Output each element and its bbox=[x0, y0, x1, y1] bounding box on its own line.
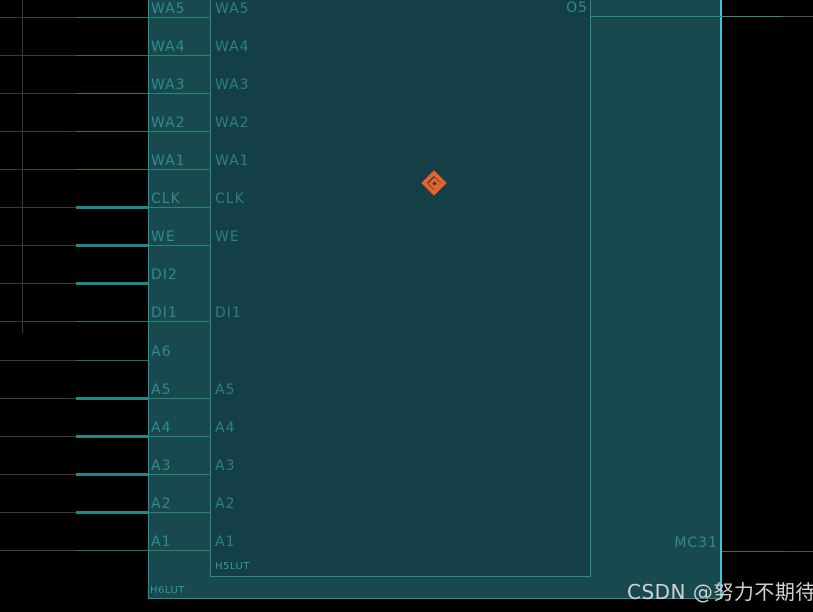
net-a3[interactable] bbox=[76, 473, 148, 476]
offpage-net[interactable] bbox=[0, 245, 76, 246]
internal-net-wa1[interactable] bbox=[148, 169, 211, 170]
net-wa1[interactable] bbox=[76, 169, 148, 170]
offpage-net[interactable] bbox=[0, 93, 76, 94]
pin-label-di2[interactable]: DI2 bbox=[151, 267, 178, 283]
net-wa3[interactable] bbox=[76, 93, 148, 94]
offpage-net[interactable] bbox=[0, 17, 76, 18]
cell-type-label-h5lut: H5LUT bbox=[215, 561, 250, 573]
offpage-net[interactable] bbox=[0, 436, 76, 437]
pin-label-a2[interactable]: A2 bbox=[151, 496, 171, 512]
pin-label-a3[interactable]: A3 bbox=[151, 458, 171, 474]
inner-pin-label-a5[interactable]: A5 bbox=[215, 382, 235, 398]
internal-net-wa3[interactable] bbox=[148, 93, 211, 94]
schematic-canvas: WA5 WA4 WA3 WA2 WA1 CLK WE DI2 DI1 A6 A5… bbox=[0, 0, 813, 612]
inner-pin-label-clk[interactable]: CLK bbox=[215, 191, 245, 207]
pin-label-o5[interactable]: O5 bbox=[488, 0, 588, 16]
internal-net-a5[interactable] bbox=[148, 398, 211, 399]
pin-label-we[interactable]: WE bbox=[151, 229, 176, 245]
inner-pin-label-a2[interactable]: A2 bbox=[215, 496, 235, 512]
internal-net-a3[interactable] bbox=[148, 474, 211, 475]
inner-pin-label-wa3[interactable]: WA3 bbox=[215, 77, 250, 93]
inner-pin-label-wa1[interactable]: WA1 bbox=[215, 153, 250, 169]
net-a5[interactable] bbox=[76, 397, 148, 400]
pin-label-a6[interactable]: A6 bbox=[151, 344, 171, 360]
internal-net-a1[interactable] bbox=[148, 550, 211, 551]
offpage-net[interactable] bbox=[0, 398, 76, 399]
inner-pin-label-we[interactable]: WE bbox=[215, 229, 240, 245]
pin-label-a4[interactable]: A4 bbox=[151, 420, 171, 436]
net-o5-offpage[interactable] bbox=[783, 16, 813, 17]
net-wa4[interactable] bbox=[76, 55, 148, 56]
offpage-net[interactable] bbox=[0, 283, 76, 284]
offpage-net[interactable] bbox=[0, 474, 76, 475]
pin-label-clk[interactable]: CLK bbox=[151, 191, 181, 207]
inner-pin-label-a3[interactable]: A3 bbox=[215, 458, 235, 474]
net-wa5[interactable] bbox=[76, 17, 148, 18]
csdn-watermark: CSDN @努力不期待 bbox=[627, 581, 813, 604]
inner-pin-label-wa4[interactable]: WA4 bbox=[215, 39, 250, 55]
pin-label-a1[interactable]: A1 bbox=[151, 534, 171, 550]
offpage-net[interactable] bbox=[0, 55, 76, 56]
internal-net-wa4[interactable] bbox=[148, 55, 211, 56]
inner-pin-label-wa2[interactable]: WA2 bbox=[215, 115, 250, 131]
pin-label-wa4[interactable]: WA4 bbox=[151, 39, 186, 55]
pin-label-wa1[interactable]: WA1 bbox=[151, 153, 186, 169]
net-di2[interactable] bbox=[76, 282, 148, 285]
net-di1[interactable] bbox=[76, 321, 148, 322]
offpage-net[interactable] bbox=[0, 169, 76, 170]
pin-label-a5[interactable]: A5 bbox=[151, 382, 171, 398]
net-a6[interactable] bbox=[76, 360, 148, 361]
pin-label-wa2[interactable]: WA2 bbox=[151, 115, 186, 131]
inner-pin-label-a4[interactable]: A4 bbox=[215, 420, 235, 436]
offpage-net[interactable] bbox=[0, 550, 76, 551]
net-wa2[interactable] bbox=[76, 131, 148, 132]
pin-label-wa5[interactable]: WA5 bbox=[151, 1, 186, 17]
net-mc31-offpage[interactable] bbox=[785, 551, 813, 552]
cell-type-label-h6lut: H6LUT bbox=[150, 585, 185, 597]
net-mc31[interactable] bbox=[722, 551, 785, 552]
net-we[interactable] bbox=[76, 244, 148, 247]
offpage-net[interactable] bbox=[0, 131, 76, 132]
offpage-net[interactable] bbox=[0, 512, 76, 513]
net-a1[interactable] bbox=[76, 550, 148, 551]
pin-label-di1[interactable]: DI1 bbox=[151, 305, 178, 321]
cell-h5lut[interactable] bbox=[210, 0, 591, 577]
internal-net-a2[interactable] bbox=[148, 512, 211, 513]
internal-net-clk[interactable] bbox=[148, 207, 211, 208]
inner-pin-label-wa5[interactable]: WA5 bbox=[215, 1, 250, 17]
inner-pin-label-di1[interactable]: DI1 bbox=[215, 305, 242, 321]
internal-net-wa2[interactable] bbox=[148, 131, 211, 132]
net-a2[interactable] bbox=[76, 511, 148, 514]
net-a4[interactable] bbox=[76, 435, 148, 438]
internal-net-a4[interactable] bbox=[148, 436, 211, 437]
internal-net-we[interactable] bbox=[148, 245, 211, 246]
offpage-net[interactable] bbox=[0, 207, 76, 208]
net-clk[interactable] bbox=[76, 206, 148, 209]
internal-net-di1[interactable] bbox=[148, 321, 211, 322]
offpage-net[interactable] bbox=[0, 360, 76, 361]
inner-pin-label-a1[interactable]: A1 bbox=[215, 534, 235, 550]
pin-label-wa3[interactable]: WA3 bbox=[151, 77, 186, 93]
net-o5[interactable] bbox=[591, 16, 783, 17]
offpage-net[interactable] bbox=[0, 321, 76, 322]
internal-net-wa5[interactable] bbox=[148, 17, 211, 18]
pin-label-mc31[interactable]: MC31 bbox=[598, 535, 718, 551]
